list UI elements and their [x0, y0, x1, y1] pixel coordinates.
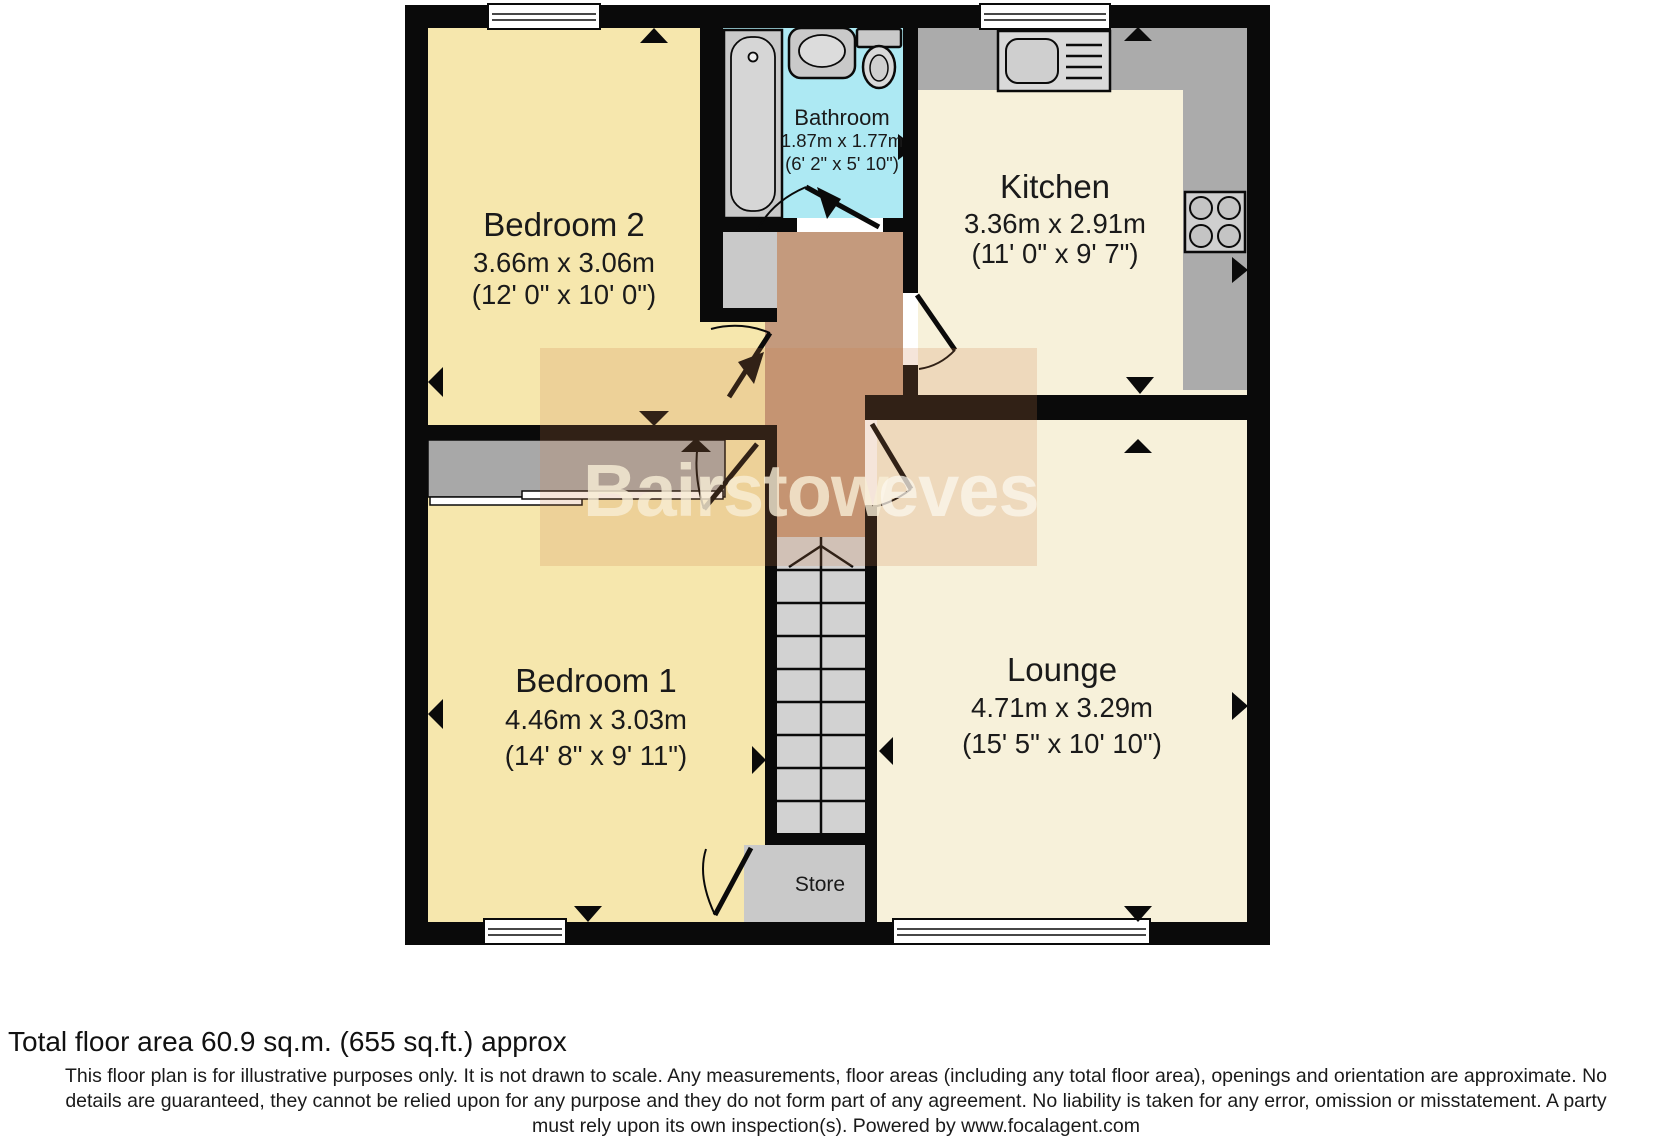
window-bedroom1	[484, 919, 566, 944]
store-label: Store	[795, 873, 845, 896]
kitchen-metric: 3.36m x 2.91m	[964, 208, 1146, 239]
basin-bowl-icon	[799, 35, 845, 67]
wall-left	[405, 5, 428, 945]
total-floor-area-text: Total floor area 60.9 sq.m. (655 sq.ft.)…	[8, 1026, 567, 1058]
floor-plan-svg: Bedroom 2 3.66m x 3.06m (12' 0" x 10' 0"…	[0, 0, 1672, 1136]
bedroom1-metric: 4.46m x 3.03m	[505, 704, 687, 735]
toilet-cistern-icon	[857, 29, 901, 47]
hall-floor	[777, 232, 903, 322]
wall-right	[1247, 5, 1270, 945]
window-lounge	[893, 919, 1150, 944]
disclaimer-line-2: details are guaranteed, they cannot be r…	[0, 1089, 1672, 1114]
sink-bowl-icon	[1006, 39, 1058, 83]
bedroom2-label: Bedroom 2	[483, 206, 644, 243]
wall-hall-lounge	[865, 505, 877, 922]
staircase	[777, 537, 865, 838]
watermark-text-eves: eves	[878, 449, 1039, 532]
bathroom-metric: 1.87m x 1.77m	[781, 130, 903, 151]
bedroom1-imperial: (14' 8" x 9' 11")	[505, 740, 687, 771]
lounge-imperial: (15' 5" x 10' 10")	[962, 728, 1162, 759]
bedroom1-label: Bedroom 1	[515, 662, 676, 699]
bathtub-inner-icon	[731, 37, 775, 211]
kitchen-label: Kitchen	[1000, 168, 1110, 205]
wall-cupboard-bottom	[700, 308, 777, 322]
lounge-metric: 4.71m x 3.29m	[971, 692, 1153, 723]
window-bedroom2	[488, 4, 600, 29]
disclaimer-text: This floor plan is for illustrative purp…	[0, 1064, 1672, 1136]
bathroom-imperial: (6' 2" x 5' 10")	[785, 153, 899, 174]
bathtub-drain-icon	[749, 53, 758, 62]
disclaimer-line-1: This floor plan is for illustrative purp…	[0, 1064, 1672, 1089]
bedroom2-metric: 3.66m x 3.06m	[473, 247, 655, 278]
disclaimer-line-3: must rely upon its own inspection(s). Po…	[0, 1114, 1672, 1136]
wall-bedroom2-bathroom	[700, 28, 723, 322]
wall-kitchen-left-upper	[903, 232, 918, 293]
watermark: Bairstow eves	[540, 348, 1039, 566]
bathroom-label: Bathroom	[794, 105, 889, 130]
floor-plan-page: Bedroom 2 3.66m x 3.06m (12' 0" x 10' 0"…	[0, 0, 1672, 1136]
wall-bathroom-bottom-right	[883, 218, 903, 232]
bedroom2-imperial: (12' 0" x 10' 0")	[472, 279, 656, 310]
wall-store-top	[765, 833, 865, 845]
lounge-label: Lounge	[1007, 651, 1117, 688]
toilet-bowl-inner-icon	[870, 55, 888, 81]
kitchen-imperial: (11' 0" x 9' 7")	[971, 238, 1138, 269]
wall-bathroom-kitchen	[903, 28, 918, 232]
window-kitchen	[980, 4, 1110, 29]
watermark-text-bairstow: Bairstow	[583, 449, 889, 532]
